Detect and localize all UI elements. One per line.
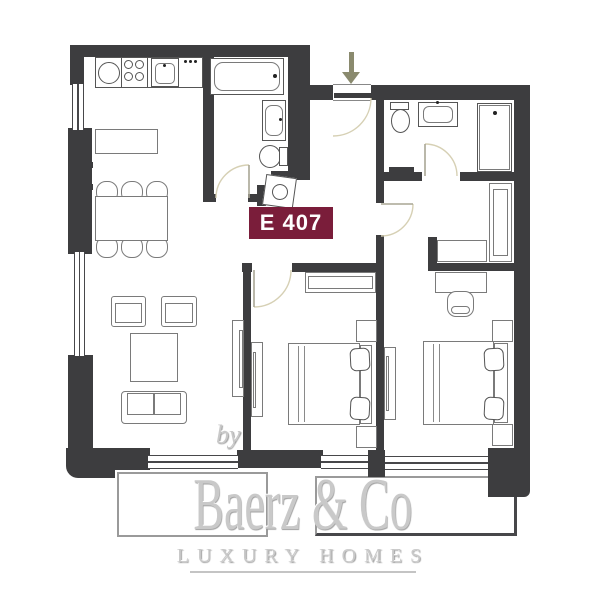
blanket-fold [304, 346, 305, 422]
toilet-tank [279, 147, 288, 166]
watermark-by: by [216, 420, 241, 450]
toilet [259, 145, 281, 168]
toilet [391, 109, 410, 133]
wall [112, 448, 150, 470]
wall [88, 184, 93, 190]
entry-door-leaf [334, 93, 371, 98]
wall [203, 194, 216, 202]
sofa-cushion [154, 393, 181, 415]
unit-label: E 407 [260, 210, 323, 236]
armchair-seat [165, 303, 193, 323]
door-swing [381, 204, 413, 236]
wall-hall [376, 235, 384, 455]
counter-dot [184, 60, 187, 63]
wall [68, 355, 93, 452]
watermark-tagline: LUXURY HOMES [100, 545, 506, 568]
window [74, 252, 85, 356]
unit-badge: E 407 [249, 207, 333, 239]
tap-dot [436, 101, 439, 104]
wall-bed2-partition [428, 263, 514, 271]
armchair-seat [115, 303, 142, 323]
window [321, 455, 368, 469]
wall [237, 450, 323, 468]
burner [124, 60, 133, 69]
blanket-fold [298, 346, 299, 422]
wall-bed2-partition [428, 237, 437, 267]
door-swing [216, 165, 249, 198]
blanket-fold [439, 344, 440, 422]
washbasin-bowl [423, 106, 453, 123]
tap-dot [163, 64, 166, 67]
wall-bath2-bottom [460, 172, 514, 181]
bathtub-drain [273, 74, 277, 78]
nightstand [356, 320, 377, 342]
wall-hall [376, 97, 384, 203]
kitchen-island [95, 129, 158, 154]
tv-screen [239, 330, 243, 388]
wall [514, 98, 530, 455]
tap-dot [279, 118, 282, 121]
wall [70, 45, 310, 57]
wall-bed1-top [292, 263, 376, 272]
wall-bed1-left [243, 263, 251, 452]
balcony-right [315, 476, 517, 536]
wall [371, 85, 530, 100]
counter-dot [194, 60, 197, 63]
door-swing [254, 270, 291, 307]
wall [488, 448, 530, 497]
wall [88, 162, 93, 168]
pillow [483, 347, 504, 371]
wardrobe-door [386, 356, 389, 411]
door-swing [333, 98, 371, 136]
pillow [483, 396, 504, 420]
wall [66, 448, 115, 478]
wall [70, 45, 84, 85]
nightstand [356, 426, 377, 448]
pillow [349, 396, 370, 420]
burner [124, 72, 133, 81]
floor-plan: E 407 by Baerz & Co LUXURY HOMES [0, 0, 600, 599]
window [72, 84, 84, 130]
nightstand [492, 424, 513, 446]
burner [135, 72, 144, 81]
watermark-underline [190, 571, 416, 573]
counter-dot [189, 60, 192, 63]
blanket-fold [433, 344, 434, 422]
wall-bath1-right [288, 45, 310, 178]
dresser [437, 240, 487, 262]
desk [435, 272, 487, 293]
kitchen-sink [98, 62, 120, 84]
dining-table [95, 196, 168, 241]
burner [135, 60, 144, 69]
bathtub-basin [214, 62, 280, 91]
balcony-left [117, 472, 268, 537]
wall [68, 128, 92, 254]
wardrobe-door [253, 352, 256, 408]
coffee-table [130, 333, 178, 382]
window [148, 455, 238, 469]
entry-arrow-icon [349, 52, 354, 73]
sofa-cushion [127, 393, 154, 415]
door-swing [425, 144, 457, 176]
entry-arrow-icon [342, 72, 360, 84]
desk-chair-back [451, 306, 470, 314]
shower-drain [493, 111, 497, 115]
wardrobe-door [308, 276, 373, 289]
nightstand [492, 320, 513, 342]
pillow [349, 347, 370, 371]
closet-door [493, 189, 508, 256]
wall [310, 85, 333, 100]
bath2-mat [389, 167, 414, 175]
window [385, 456, 488, 470]
